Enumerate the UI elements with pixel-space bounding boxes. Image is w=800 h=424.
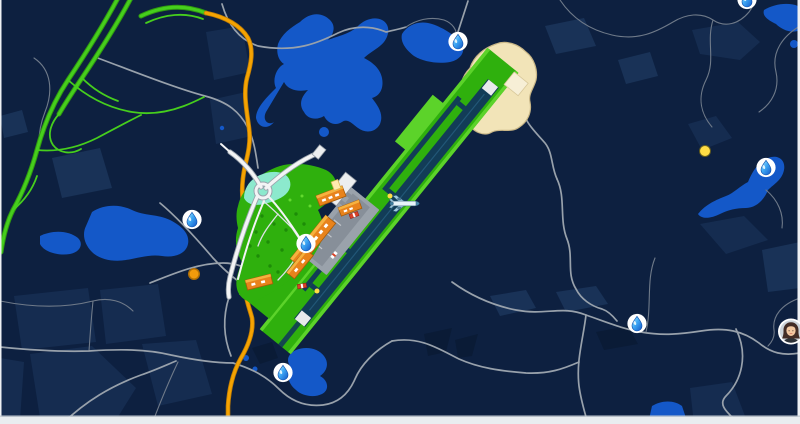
airplane-icon: [388, 194, 420, 214]
map-canvas[interactable]: [0, 0, 800, 424]
water-drop-icon: [756, 158, 776, 178]
aircraft-marker[interactable]: [388, 194, 420, 219]
water-drop-marker[interactable]: [273, 363, 293, 388]
water-drop-icon: [737, 0, 757, 10]
avatar-face-icon: [778, 318, 800, 345]
water-drop-icon: [627, 314, 647, 334]
water-drop-icon: [182, 210, 202, 230]
yellow-dot-marker[interactable]: [700, 146, 710, 156]
orange-dot-marker[interactable]: [190, 270, 199, 279]
water-drop-icon: [296, 234, 316, 254]
water-drop-icon: [273, 363, 293, 383]
marker-layer: [0, 0, 800, 424]
water-drop-marker[interactable]: [627, 314, 647, 339]
water-drop-marker[interactable]: [737, 0, 757, 15]
water-drop-marker[interactable]: [448, 32, 468, 57]
water-drop-marker[interactable]: [296, 234, 316, 259]
water-drop-icon: [448, 32, 468, 52]
small-yellow-dot-marker[interactable]: [315, 289, 320, 294]
water-drop-marker[interactable]: [182, 210, 202, 235]
water-drop-marker[interactable]: [756, 158, 776, 183]
player-avatar[interactable]: [778, 318, 800, 350]
